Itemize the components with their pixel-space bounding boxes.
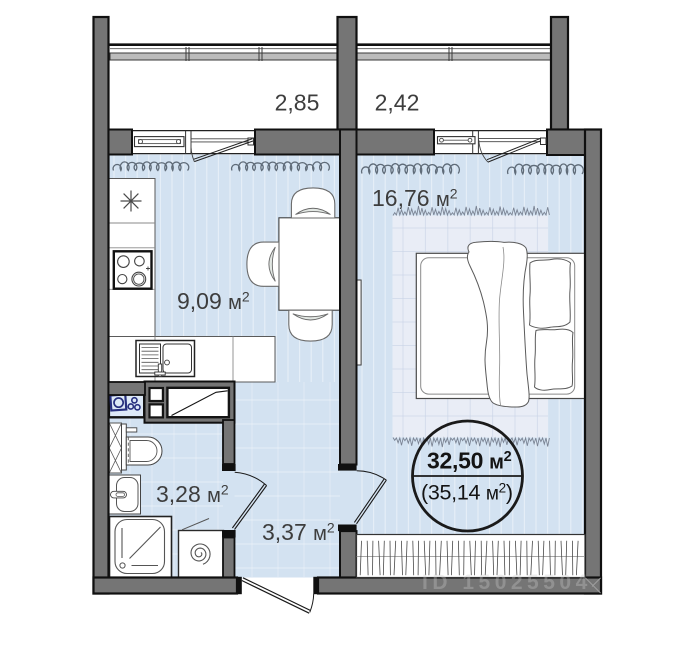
svg-text:2,42: 2,42: [375, 90, 420, 116]
svg-text:3,37 м2: 3,37 м2: [262, 519, 335, 545]
svg-text:ID 15025504: ID 15025504: [422, 571, 592, 594]
svg-text:32,50 м2: 32,50 м2: [427, 448, 512, 474]
svg-text:3,28 м2: 3,28 м2: [156, 481, 229, 507]
svg-text:9,09 м2: 9,09 м2: [177, 288, 250, 314]
svg-text:16,76 м2: 16,76 м2: [372, 185, 458, 211]
svg-text:2,85: 2,85: [275, 90, 320, 116]
